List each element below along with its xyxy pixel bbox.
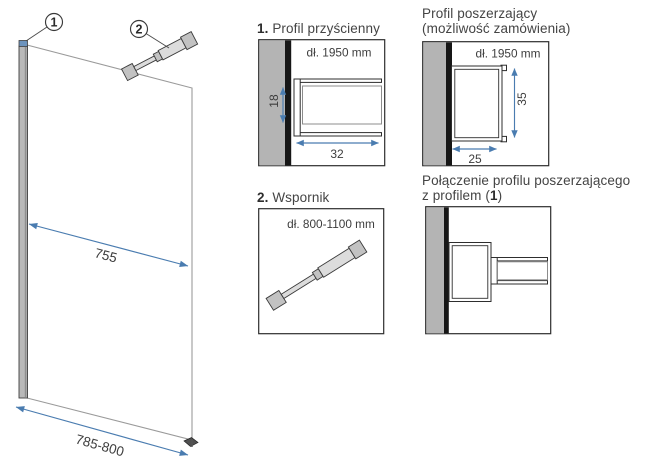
- panel-support-diagram: dł. 800-1100 mm: [258, 208, 385, 335]
- title-line2: (możliwość zamówienia): [422, 21, 571, 36]
- assembly-drawing: 1 2 755 785-800: [0, 0, 240, 474]
- wall-profile-section: [491, 258, 548, 285]
- extension-profile-section: [449, 243, 491, 302]
- callout-number-1: 1: [51, 16, 58, 30]
- technical-diagram-sheet: 1 2 755 785-800 1. Profil przyścienny: [0, 0, 647, 474]
- dim-label-18: 18: [267, 94, 281, 108]
- title-line1: Połączenie profilu poszerzającego: [422, 173, 630, 188]
- support-bar: [121, 32, 198, 81]
- panel-title-text: Wspornik: [272, 190, 329, 205]
- panel-support-title: 2. Wspornik: [257, 190, 329, 205]
- length-label: dł. 1950 mm: [307, 46, 372, 60]
- dim-label-25: 25: [468, 152, 482, 166]
- glass-panel: [27, 45, 192, 440]
- wall-hatch: [426, 207, 444, 333]
- glass-edge: [498, 262, 548, 280]
- extension-profile-cross-section: [452, 65, 507, 142]
- wall-strip: [444, 207, 449, 333]
- callout-wall-profile: 1: [26, 14, 63, 42]
- panel-number: 1.: [257, 21, 268, 36]
- wall-hatch: [423, 42, 446, 165]
- panel-connection-title: Połączenie profilu poszerzającego z prof…: [422, 173, 630, 203]
- panel-connection-diagram: [425, 206, 552, 335]
- panel-wall-profile-title: 1. Profil przyścienny: [257, 21, 380, 36]
- dim-label-35: 35: [515, 92, 529, 106]
- profile-top-cap: [19, 41, 28, 47]
- panel-title-text: Profil przyścienny: [272, 21, 380, 36]
- dim-label-32: 32: [330, 147, 344, 161]
- length-label: dł. 1950 mm: [476, 47, 541, 61]
- wall-profile: [19, 41, 28, 399]
- callout-number-2: 2: [136, 23, 143, 37]
- length-label: dł. 800-1100 mm: [287, 217, 375, 231]
- panel-number: 2.: [257, 190, 268, 205]
- callout-support-bar: 2: [131, 21, 170, 49]
- panel-wall-profile-diagram: dł. 1950 mm 18 32: [258, 39, 386, 167]
- title-line1: Profil poszerzający: [422, 6, 537, 21]
- glass-edge: [303, 86, 382, 124]
- panel-extension-profile-diagram: dł. 1950 mm 35 25: [422, 41, 550, 167]
- panel-extension-profile-title: Profil poszerzający (możliwość zamówieni…: [422, 6, 571, 36]
- wall-strip: [285, 40, 291, 165]
- title-line2: z profilem (1): [422, 188, 502, 203]
